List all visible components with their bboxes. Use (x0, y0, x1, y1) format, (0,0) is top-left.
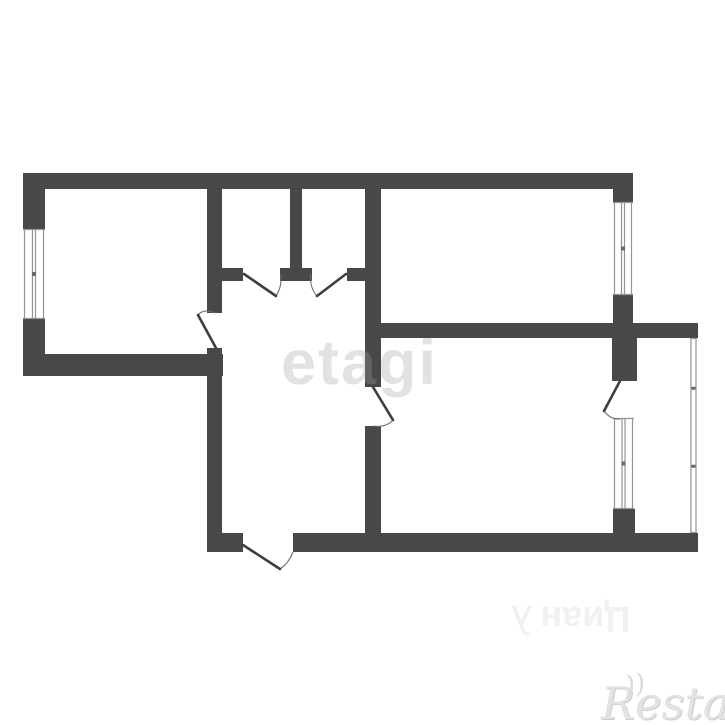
wall (293, 533, 698, 552)
wall (23, 189, 45, 229)
door-leaf (604, 381, 620, 411)
wall (222, 268, 243, 281)
wall (613, 295, 633, 323)
wall (612, 338, 637, 381)
watermark-cian-text: Циан (540, 598, 630, 640)
wall (280, 268, 312, 281)
glazing-tick (692, 387, 696, 390)
door-leaf (243, 545, 280, 569)
door-leaf (317, 274, 346, 296)
watermark-restate: Restate (601, 677, 725, 725)
wall (207, 533, 243, 552)
wall (23, 173, 633, 189)
window-tick (621, 247, 625, 251)
floor-plan-image: etagi Циан λ Restate )) (0, 0, 725, 725)
window-tick (622, 462, 626, 466)
wall (347, 268, 366, 281)
glazing-tick (692, 465, 696, 468)
wall (207, 189, 222, 313)
wall (23, 354, 223, 376)
wall (365, 426, 381, 552)
door-leaf (244, 274, 276, 296)
wall (290, 189, 302, 268)
door-swing-arc (604, 411, 620, 419)
wall (613, 189, 633, 202)
door-leaf (198, 315, 216, 348)
wall (613, 509, 635, 533)
watermark-etagi: etagi (281, 327, 438, 399)
cian-logo-icon: λ (511, 595, 532, 643)
door-swing-arc (280, 552, 293, 569)
wall (207, 348, 222, 552)
door-swing-arc (373, 420, 393, 426)
watermark-cian: Циан λ (486, 594, 656, 644)
window-tick (32, 272, 36, 276)
